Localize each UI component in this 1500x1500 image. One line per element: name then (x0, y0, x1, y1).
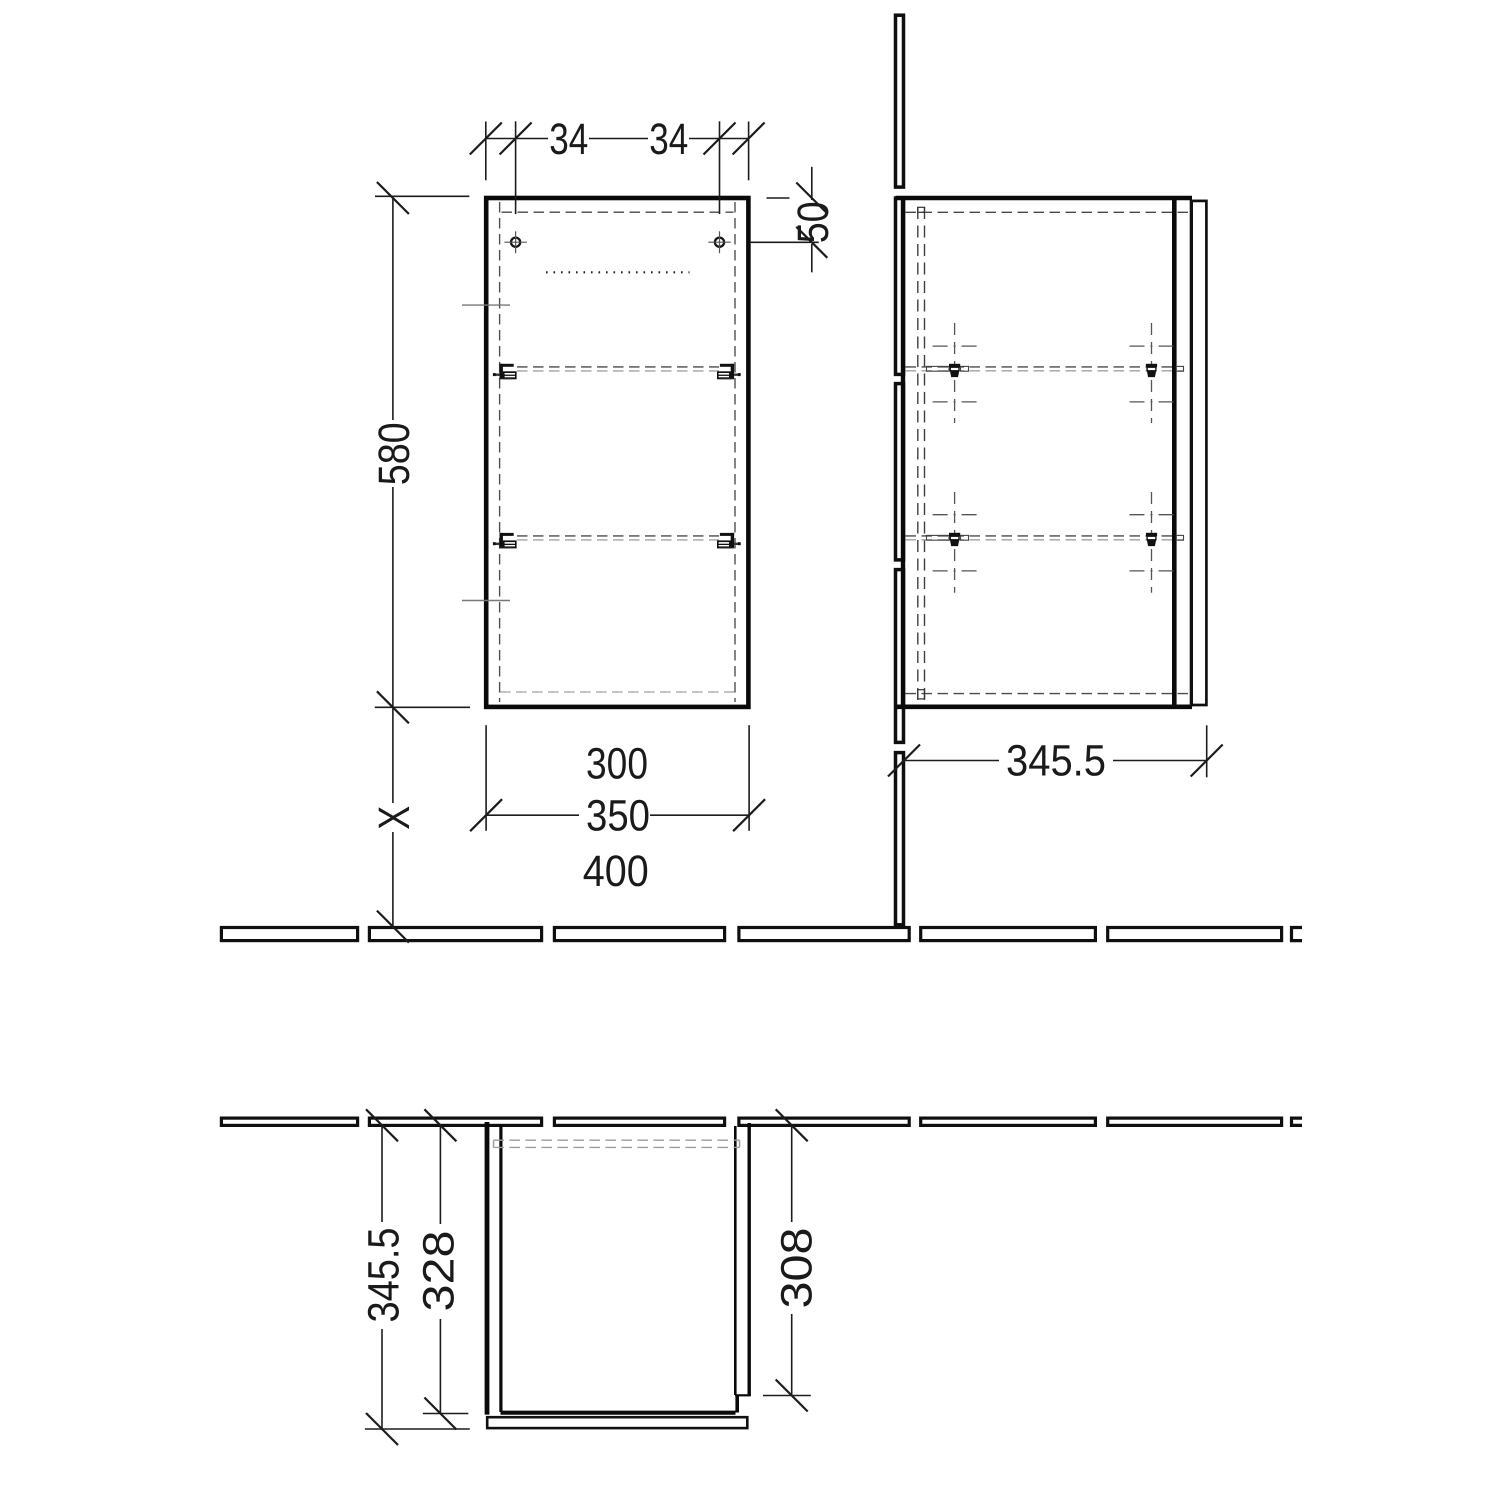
svg-text:350: 350 (586, 792, 650, 841)
svg-text:345.5: 345.5 (360, 1228, 409, 1323)
svg-text:345.5: 345.5 (1006, 737, 1106, 786)
svg-text:308: 308 (773, 1228, 822, 1309)
svg-text:328: 328 (415, 1231, 464, 1312)
svg-text:50: 50 (789, 201, 838, 243)
svg-text:580: 580 (370, 422, 419, 485)
svg-text:400: 400 (583, 847, 649, 896)
svg-text:300: 300 (586, 740, 648, 789)
svg-text:34: 34 (549, 115, 588, 164)
svg-text:34: 34 (649, 115, 688, 164)
svg-text:X: X (370, 806, 419, 830)
